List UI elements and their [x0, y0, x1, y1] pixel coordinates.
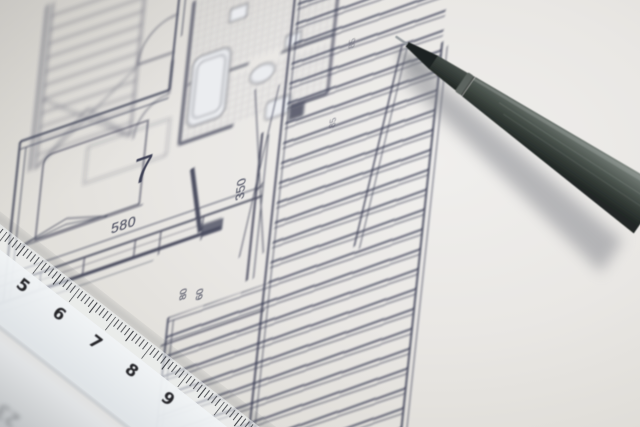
- photo-floorplan-scene: 7 580 350 80 60 85 85 4: [0, 0, 640, 427]
